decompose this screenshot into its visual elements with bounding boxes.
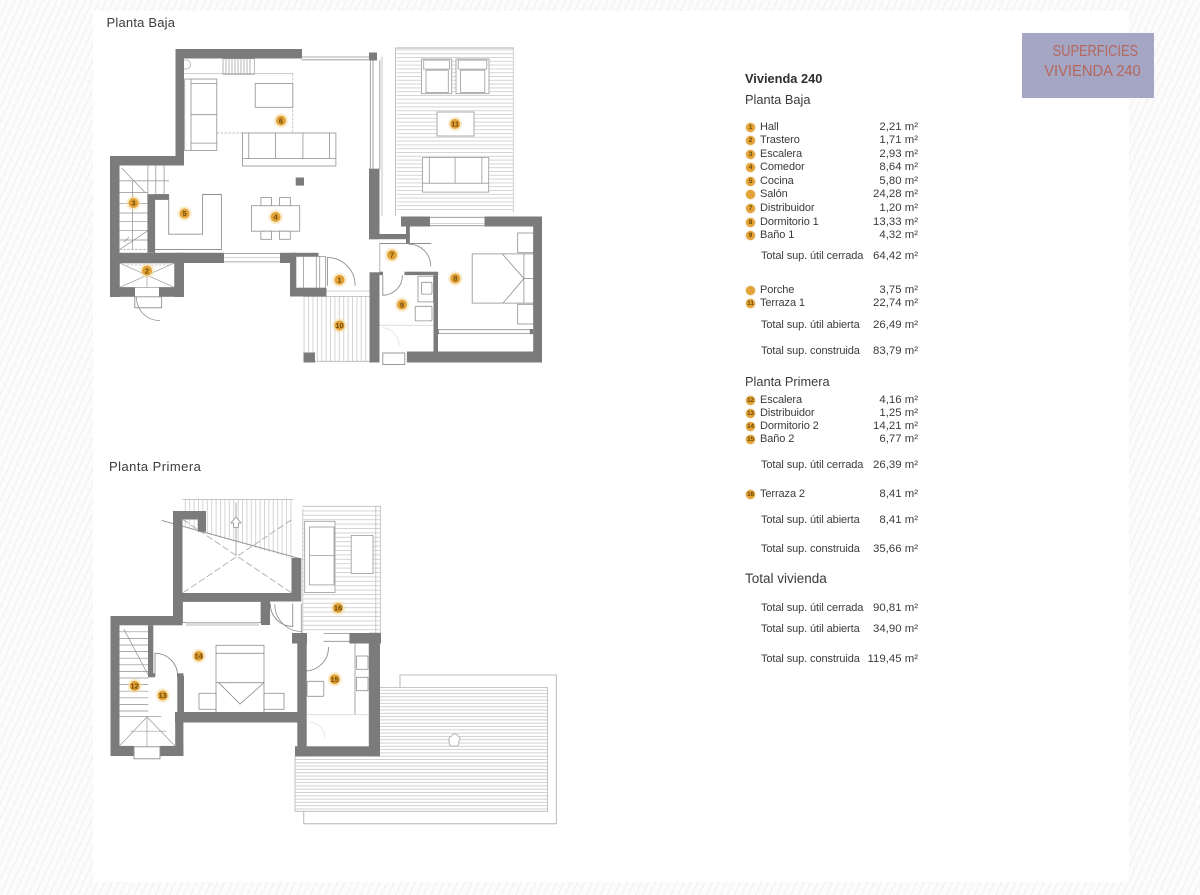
svg-text:9: 9	[400, 300, 404, 309]
svg-text:2: 2	[145, 266, 149, 275]
svg-text:15: 15	[331, 675, 339, 684]
svg-text:8: 8	[453, 274, 457, 283]
svg-text:14: 14	[195, 652, 204, 661]
svg-text:1: 1	[337, 276, 341, 285]
svg-text:11: 11	[451, 120, 459, 129]
svg-text:6: 6	[279, 116, 283, 125]
svg-text:7: 7	[390, 251, 394, 260]
svg-text:5: 5	[183, 209, 187, 218]
svg-text:16: 16	[334, 604, 342, 613]
svg-text:12: 12	[131, 682, 139, 691]
svg-text:13: 13	[159, 691, 167, 700]
svg-text:3: 3	[131, 199, 135, 208]
svg-text:10: 10	[335, 321, 343, 330]
